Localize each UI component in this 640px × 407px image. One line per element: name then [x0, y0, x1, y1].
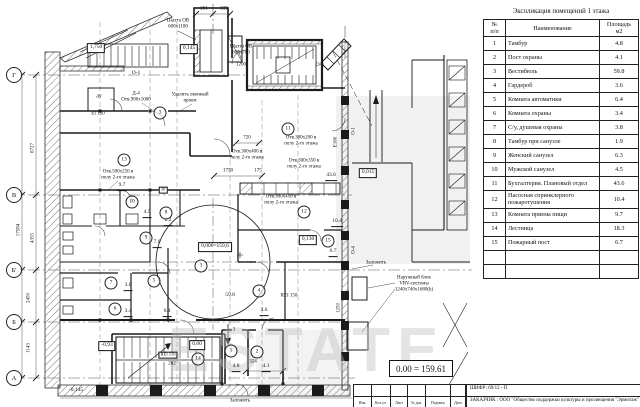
- table-cell: 3.8: [600, 121, 639, 135]
- floor-plan-sheet: ESTATE Шахта ОВ600х1100261339Шахта ОВ600…: [0, 0, 640, 407]
- plan-label: полу 2-го этажа: [230, 155, 263, 160]
- table-cell: [506, 264, 600, 278]
- table-cell: 13: [484, 208, 506, 222]
- table-cell: [506, 250, 600, 264]
- table-cell: 1.9: [600, 135, 639, 149]
- plan-label: -0,93: [98, 341, 115, 351]
- plan-label: 17584: [16, 224, 21, 237]
- plan-label: Шахта ОВ: [230, 44, 252, 49]
- stamp-cell: [408, 385, 426, 396]
- plan-label: Шахта ОВ: [167, 18, 189, 23]
- plan-label: 4.1: [262, 364, 271, 372]
- plan-label: 3.6: [260, 308, 269, 316]
- plan-label: Заложить: [366, 260, 386, 265]
- table-cell: [484, 264, 506, 278]
- plan-label: 3.4: [124, 309, 133, 317]
- plan-label: 175: [254, 168, 262, 173]
- axis-bubble: Б: [6, 314, 22, 330]
- plan-label: 600х700: [232, 50, 250, 55]
- table-cell: 5: [484, 93, 506, 107]
- table-cell: 3.6: [600, 79, 639, 93]
- table-row: 2Пост охраны4.1: [484, 51, 639, 65]
- table-cell: 43.6: [600, 177, 639, 191]
- table-row: 8Тамбур при санузле1.9: [484, 135, 639, 149]
- plan-label: 43.6: [325, 173, 337, 181]
- customer-text: ЗАКАЗЧИК : ООО "Общество поддержки культ…: [467, 397, 640, 407]
- plan-label: 4.5: [143, 210, 152, 218]
- table-cell: 8: [484, 135, 506, 149]
- table-cell: 6.7: [600, 236, 639, 250]
- table-cell: 12: [484, 191, 506, 208]
- table-cell: 18.3: [600, 222, 639, 236]
- table-cell: 4.8: [600, 37, 639, 51]
- table-cell: Вестибюль: [506, 65, 600, 79]
- table-cell: 6.4: [600, 93, 639, 107]
- stamp-label: Подпись: [426, 397, 451, 407]
- room-number-bubble: 7: [105, 277, 118, 290]
- stamp-label: Лист: [391, 397, 408, 407]
- table-cell: 59.8: [600, 65, 639, 79]
- col-header-name: Наименование: [506, 20, 600, 37]
- axis-bubble: А: [6, 370, 22, 386]
- plan-label: 7.0: [153, 240, 162, 248]
- plan-label: Отв.300х350 в: [289, 158, 320, 163]
- table-cell: 10: [484, 163, 506, 177]
- table-row: 6Комната охраны3.4: [484, 107, 639, 121]
- plan-label: 10.4: [331, 219, 343, 227]
- plan-label: О-1: [132, 71, 141, 77]
- plan-label: 6727: [30, 143, 35, 153]
- table-cell: Тамбур при санузле: [506, 135, 600, 149]
- table-cell: 4: [484, 79, 506, 93]
- table-header-row: №п/п Наименование Площадьм2: [484, 20, 639, 37]
- plan-label: EI 150: [91, 111, 104, 116]
- stamp-empty-row: [354, 385, 466, 397]
- table-cell: Мужской санузел: [506, 163, 600, 177]
- plan-label: О-4: [351, 246, 356, 254]
- plan-label: -0,145: [69, 388, 83, 394]
- stamp-cell: [391, 385, 408, 396]
- plan-label: 59.8: [225, 293, 235, 299]
- plan-label: Удалить оконный: [171, 92, 208, 97]
- table-cell: Гардероб: [506, 79, 600, 93]
- level-mark-box: 0.00 = 159.61: [389, 360, 453, 377]
- plan-label: О-1: [351, 127, 356, 135]
- table-row: 3Вестибюль59.8: [484, 65, 639, 79]
- table-cell: Пост охраны: [506, 51, 600, 65]
- col-header-num: №п/п: [484, 20, 506, 37]
- room-number-bubble: 12: [298, 206, 311, 219]
- table-row: 9Женский санузел6.3: [484, 149, 639, 163]
- plan-label: 1240х740х1680(h): [395, 287, 433, 292]
- table-cell: 4.5: [600, 163, 639, 177]
- table-cell: С/у, душевая охраны: [506, 121, 600, 135]
- room-number-bubble: 4: [253, 285, 266, 298]
- table-cell: [600, 264, 639, 278]
- plan-label: REI 150: [158, 352, 177, 359]
- table-cell: 10.4: [600, 191, 639, 208]
- plan-label: VRV-системы: [399, 281, 428, 286]
- plan-label: 1,750: [87, 43, 105, 53]
- room-number-bubble: 6: [109, 303, 122, 316]
- table-cell: Комната автоматики: [506, 93, 600, 107]
- room-number-bubble: 3: [154, 107, 167, 120]
- table-cell: Пожарный пост: [506, 236, 600, 250]
- plan-label: 1750: [223, 168, 233, 173]
- table-cell: 3.4: [600, 107, 639, 121]
- room-number-bubble: 15: [322, 235, 335, 248]
- plan-label: Наружный блок: [397, 275, 431, 280]
- table-cell: 7: [484, 121, 506, 135]
- plan-label: 720: [243, 135, 251, 140]
- col-header-area: Площадьм2: [600, 20, 639, 37]
- table-cell: 11: [484, 177, 506, 191]
- plan-label: 1250: [336, 303, 341, 313]
- plan-label: 1200: [236, 62, 246, 67]
- plan-label: 3.8: [124, 283, 133, 291]
- plan-label: Е160: [333, 137, 338, 148]
- room-number-bubble: 13: [118, 154, 131, 167]
- axis-bubble: Г: [6, 67, 22, 83]
- table-row: 4Гардероб3.6: [484, 79, 639, 93]
- stamp-label: № док.: [408, 397, 426, 407]
- plan-label: Заложить: [230, 398, 250, 403]
- plan-label: 0,145: [180, 44, 198, 54]
- plan-label: Отв.900х1000: [121, 97, 150, 102]
- plan-label: 600х1100: [168, 24, 188, 29]
- table-row: 15Пожарный пост6.7: [484, 236, 639, 250]
- room-number-bubble: 10: [126, 196, 139, 209]
- table-cell: 6: [484, 107, 506, 121]
- plan-label: 4355: [30, 233, 35, 243]
- table-row: 7С/у, душевая охраны3.8: [484, 121, 639, 135]
- plan-label: полу 2-го этажа: [284, 141, 317, 146]
- plan-label: 261: [200, 6, 208, 11]
- plan-label: 0,015: [359, 168, 377, 178]
- table-cell: [484, 250, 506, 264]
- stamp-label: Дата: [451, 397, 466, 407]
- table-cell: Тамбур: [506, 37, 600, 51]
- stamp-cell: [372, 385, 391, 396]
- table-cell: 9: [484, 149, 506, 163]
- plan-label: полу 2-го этажа: [264, 200, 297, 205]
- table-row: 5Комната автоматики6.4: [484, 93, 639, 107]
- room-number-bubble: 11: [282, 123, 295, 136]
- plan-label: проем: [183, 98, 196, 103]
- plan-label: 3: [233, 327, 236, 332]
- room-number-bubble: 2: [251, 346, 264, 359]
- stamp-cell: [426, 385, 451, 396]
- table-cell: 4.1: [600, 51, 639, 65]
- stamp-cell: [451, 385, 466, 396]
- plan-label: 282: [168, 361, 176, 366]
- axis-bubble: В: [6, 187, 22, 203]
- plan-label: 339: [220, 6, 228, 11]
- plan-label: 0,000=159,6: [198, 242, 232, 252]
- explication-table: Экспликация помещений 1 этажа №п/п Наиме…: [483, 8, 639, 279]
- plan-label: 0,00: [189, 340, 205, 350]
- table-cell: Женский санузел: [506, 149, 600, 163]
- table-row: 11Бухгалтерия. Плановый отдел43.6: [484, 177, 639, 191]
- plan-label: 0,130: [299, 235, 317, 245]
- stamp-label-row: Изм.Кол.уч.Лист№ док.ПодписьДата: [354, 397, 466, 407]
- plan-label: Отв.500х250 в: [103, 169, 134, 174]
- axis-bubble: Б': [6, 262, 22, 278]
- plan-label: полу 2-го этажа: [287, 164, 320, 169]
- plan-label: 4.8: [232, 364, 241, 372]
- table-cell: Комната охраны: [506, 107, 600, 121]
- room-number-bubble: 9: [140, 232, 153, 245]
- table-row: 13Комната приема пищи9.7: [484, 208, 639, 222]
- plan-label: полу 2-го этажа: [101, 175, 134, 180]
- table-cell: 9.7: [600, 208, 639, 222]
- table-cell: [600, 250, 639, 264]
- plan-label: Отв.300х400 в: [232, 149, 263, 154]
- table-row: [484, 250, 639, 264]
- plan-label: Отв.300х200 в: [286, 135, 317, 140]
- table-cell: Лестница: [506, 222, 600, 236]
- plan-label: 6.7: [329, 249, 338, 257]
- plan-label: 9.7: [118, 183, 127, 191]
- stamp-grid: Изм.Кол.уч.Лист№ док.ПодписьДата: [354, 385, 467, 407]
- plan-label: Отв.300х450 в: [266, 194, 297, 199]
- stamp-label: Изм.: [354, 397, 372, 407]
- room-number-bubble: 5: [148, 275, 161, 288]
- table-row: 10Мужской санузел4.5: [484, 163, 639, 177]
- plan-label: 1143: [26, 343, 31, 353]
- plan-label: 2450: [26, 293, 31, 303]
- table-cell: 6.3: [600, 149, 639, 163]
- plan-label: 324: [249, 359, 257, 364]
- stamp-label: Кол.уч.: [372, 397, 391, 407]
- cipher-text: ШИФР: 69/12 - П: [467, 385, 640, 397]
- table-cell: 1: [484, 37, 506, 51]
- plan-label: О-1: [316, 63, 325, 69]
- plan-label: Д-4: [132, 91, 140, 96]
- room-number-bubble: 1: [225, 345, 238, 358]
- plan-label: REI 150: [281, 293, 298, 298]
- table-cell: 15: [484, 236, 506, 250]
- table-row: 12Насосная спринклерного пожаротушения10…: [484, 191, 639, 208]
- table-cell: Комната приема пищи: [506, 208, 600, 222]
- title-block: Изм.Кол.уч.Лист№ док.ПодписьДата ШИФР: 6…: [353, 384, 640, 407]
- table-cell: Насосная спринклерного пожаротушения: [506, 191, 600, 208]
- table-cell: 3: [484, 65, 506, 79]
- table-cell: 2: [484, 51, 506, 65]
- plan-label: 6.4: [163, 309, 172, 317]
- explication-title: Экспликация помещений 1 этажа: [483, 8, 639, 15]
- table-row: 1Тамбур4.8: [484, 37, 639, 51]
- explication-body: 1Тамбур4.82Пост охраны4.13Вестибюль59.84…: [484, 37, 639, 278]
- table-row: [484, 264, 639, 278]
- room-number-bubble: 14: [192, 353, 205, 366]
- stamp-cell: [354, 385, 372, 396]
- table-cell: Бухгалтерия. Плановый отдел: [506, 177, 600, 191]
- room-number-bubble: 3: [195, 260, 208, 273]
- plan-label: 30: [159, 187, 168, 194]
- table-cell: 14: [484, 222, 506, 236]
- plan-label: ду: [96, 94, 102, 100]
- room-number-bubble: 8: [160, 207, 173, 220]
- table-row: 14Лестница18.3: [484, 222, 639, 236]
